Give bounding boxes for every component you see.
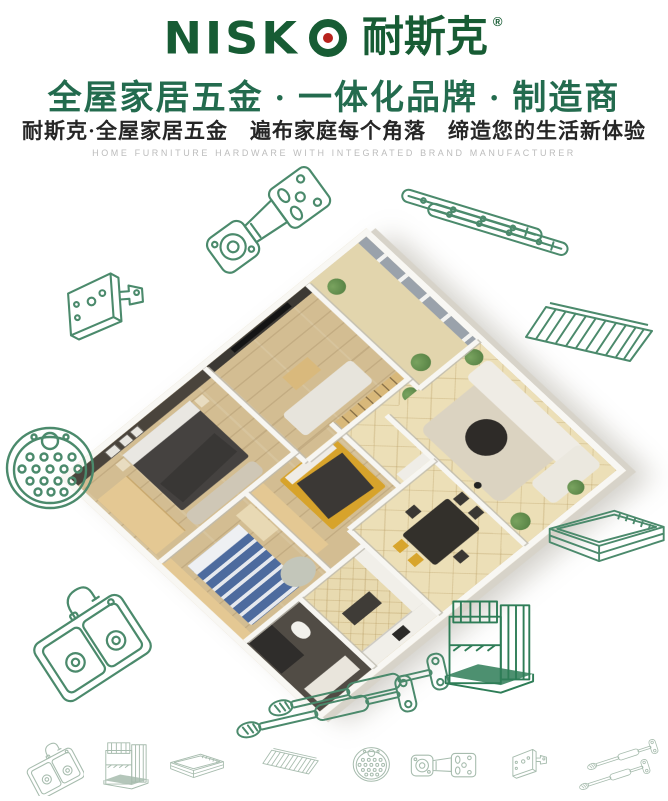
headline: 全屋家居五金 · 一体化品牌 · 制造商 (0, 70, 668, 119)
cabinet-hinge-line-art (192, 178, 342, 283)
poster: { "brand": { "latin": "NISK", "cjk": "耐斯… (0, 0, 668, 800)
logo-target-o-icon (309, 19, 347, 57)
corner-bracket-line-art (54, 266, 166, 355)
drain-plate-icon (352, 746, 394, 791)
tv-wall (207, 283, 317, 373)
dining-chair (407, 553, 424, 567)
pull-out-basket-line-art (544, 506, 668, 575)
subheadline: 耐斯克·全屋家居五金 遍布家庭每个角落 缔造您的生活新体验 (0, 115, 668, 145)
wire-storage-rack-line-art (440, 592, 544, 707)
dining-chair (393, 539, 410, 553)
dining-chair (405, 505, 422, 519)
product-icon-row (0, 734, 668, 798)
corner-bracket-icon (506, 746, 558, 791)
toilet (288, 618, 314, 641)
plant (407, 350, 436, 375)
tagline-english: HOME FURNITURE HARDWARE WITH INTEGRATED … (0, 148, 668, 158)
nightstand (194, 394, 209, 407)
logo-latin-text: NISK (164, 16, 300, 60)
kitchen-sink-line-art (16, 586, 156, 701)
wire-storage-rack-icon (100, 736, 152, 799)
gas-springs-line-art (228, 644, 438, 739)
coffee-table (282, 357, 321, 390)
wire-shelf-line-art (524, 302, 656, 371)
brand-logo: NISK 耐斯克 ® (0, 10, 668, 66)
drain-plate-line-art (4, 424, 96, 515)
wire-shelf-icon (262, 748, 322, 787)
dining-chair (453, 549, 470, 563)
drawer-slides-line-art (396, 174, 581, 271)
gas-springs-icon (574, 738, 662, 799)
pull-out-basket-icon (166, 748, 228, 793)
kitchen-sink-icon (22, 734, 84, 801)
tv (230, 302, 291, 352)
registered-mark: ® (493, 14, 503, 29)
cabinet-hinge-icon (410, 748, 482, 789)
kitchen-island (342, 591, 382, 625)
logo-cjk-text: 耐斯克 (362, 17, 488, 59)
stove (392, 625, 411, 641)
